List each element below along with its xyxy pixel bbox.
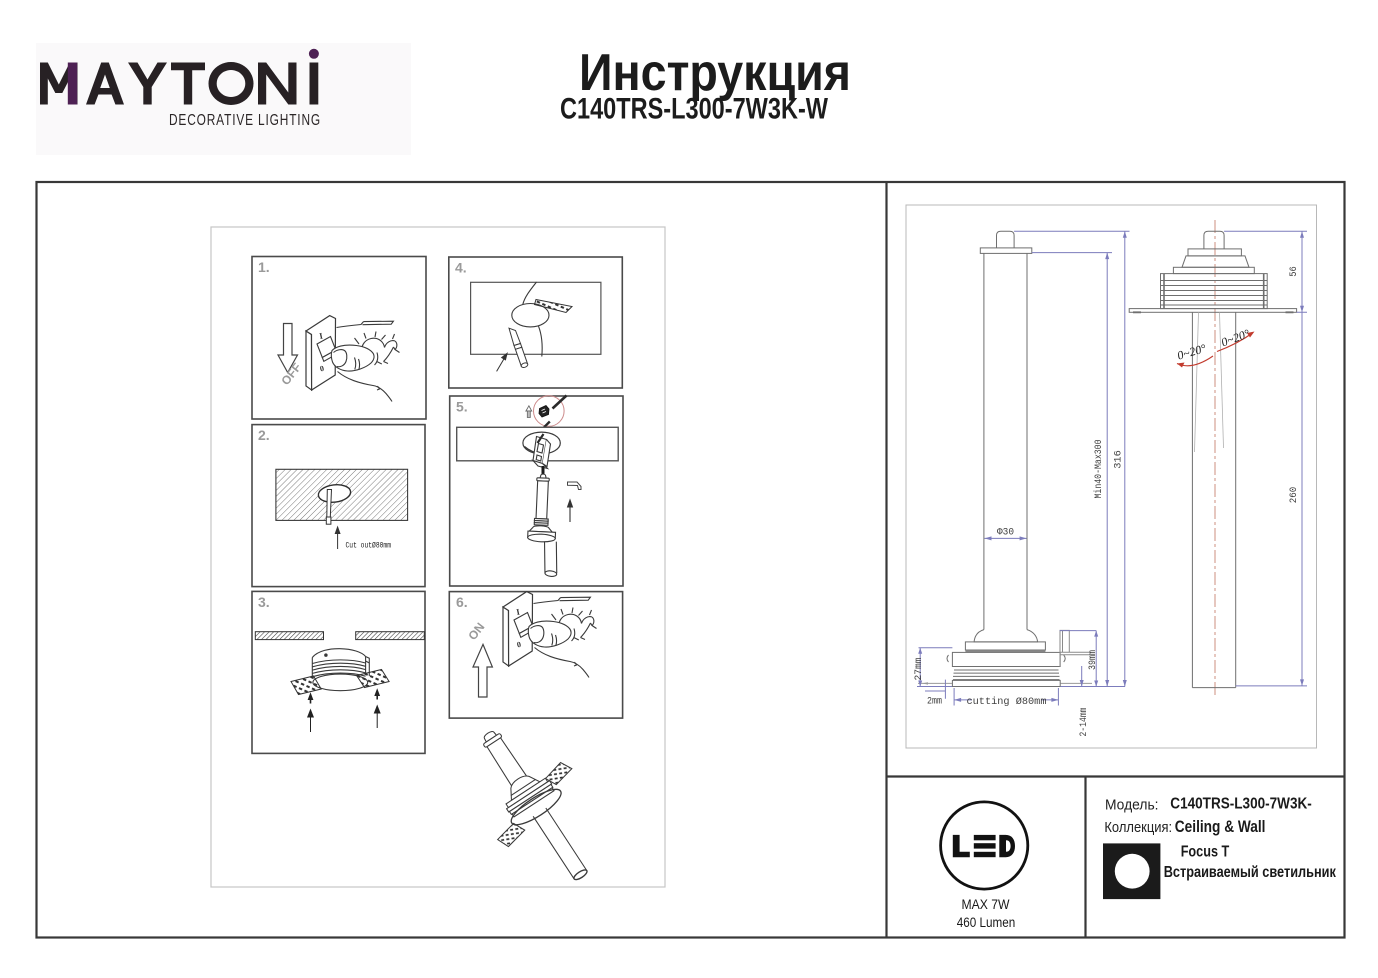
svg-text:OFF: OFF — [278, 360, 304, 388]
svg-text:Φ30: Φ30 — [997, 527, 1014, 539]
svg-text:DECORATIVE LIGHTING: DECORATIVE LIGHTING — [169, 112, 321, 129]
svg-text:ON: ON — [465, 620, 487, 643]
svg-text:Ceiling & Wall: Ceiling & Wall — [1175, 818, 1266, 836]
svg-text:27mm: 27mm — [913, 658, 925, 681]
svg-text:C140TRS-L300-7W3K-W: C140TRS-L300-7W3K-W — [560, 93, 829, 126]
svg-text:460 Lumen: 460 Lumen — [957, 914, 1016, 930]
svg-text:Min40-Max300: Min40-Max300 — [1093, 440, 1105, 499]
svg-text:cutting Ø80mm: cutting Ø80mm — [967, 696, 1047, 708]
svg-text:6.: 6. — [456, 594, 468, 610]
svg-text:316: 316 — [1113, 450, 1125, 469]
svg-text:Встраиваемый светильник: Встраиваемый светильник — [1164, 864, 1337, 881]
svg-text:MAX 7W: MAX 7W — [962, 896, 1011, 912]
svg-text:39mm: 39mm — [1087, 650, 1099, 670]
svg-text:4.: 4. — [455, 260, 467, 276]
svg-text:Focus T: Focus T — [1181, 844, 1230, 861]
svg-text:2mm: 2mm — [927, 696, 942, 708]
svg-text:2.: 2. — [258, 427, 270, 443]
svg-text:0~20°: 0~20° — [1176, 341, 1208, 363]
svg-text:3.: 3. — [258, 594, 270, 610]
svg-text:260: 260 — [1288, 487, 1300, 504]
svg-text:1.: 1. — [258, 259, 270, 275]
svg-text:2-14mm: 2-14mm — [1078, 708, 1090, 737]
svg-text:Модель:: Модель: — [1105, 797, 1159, 814]
svg-text:C140TRS-L300-7W3K-: C140TRS-L300-7W3K- — [1170, 796, 1312, 813]
svg-text:5.: 5. — [456, 399, 468, 415]
svg-text:Коллекция:: Коллекция: — [1104, 819, 1172, 836]
svg-text:Cut outØ80mm: Cut outØ80mm — [346, 541, 392, 551]
svg-text:56: 56 — [1288, 266, 1300, 277]
